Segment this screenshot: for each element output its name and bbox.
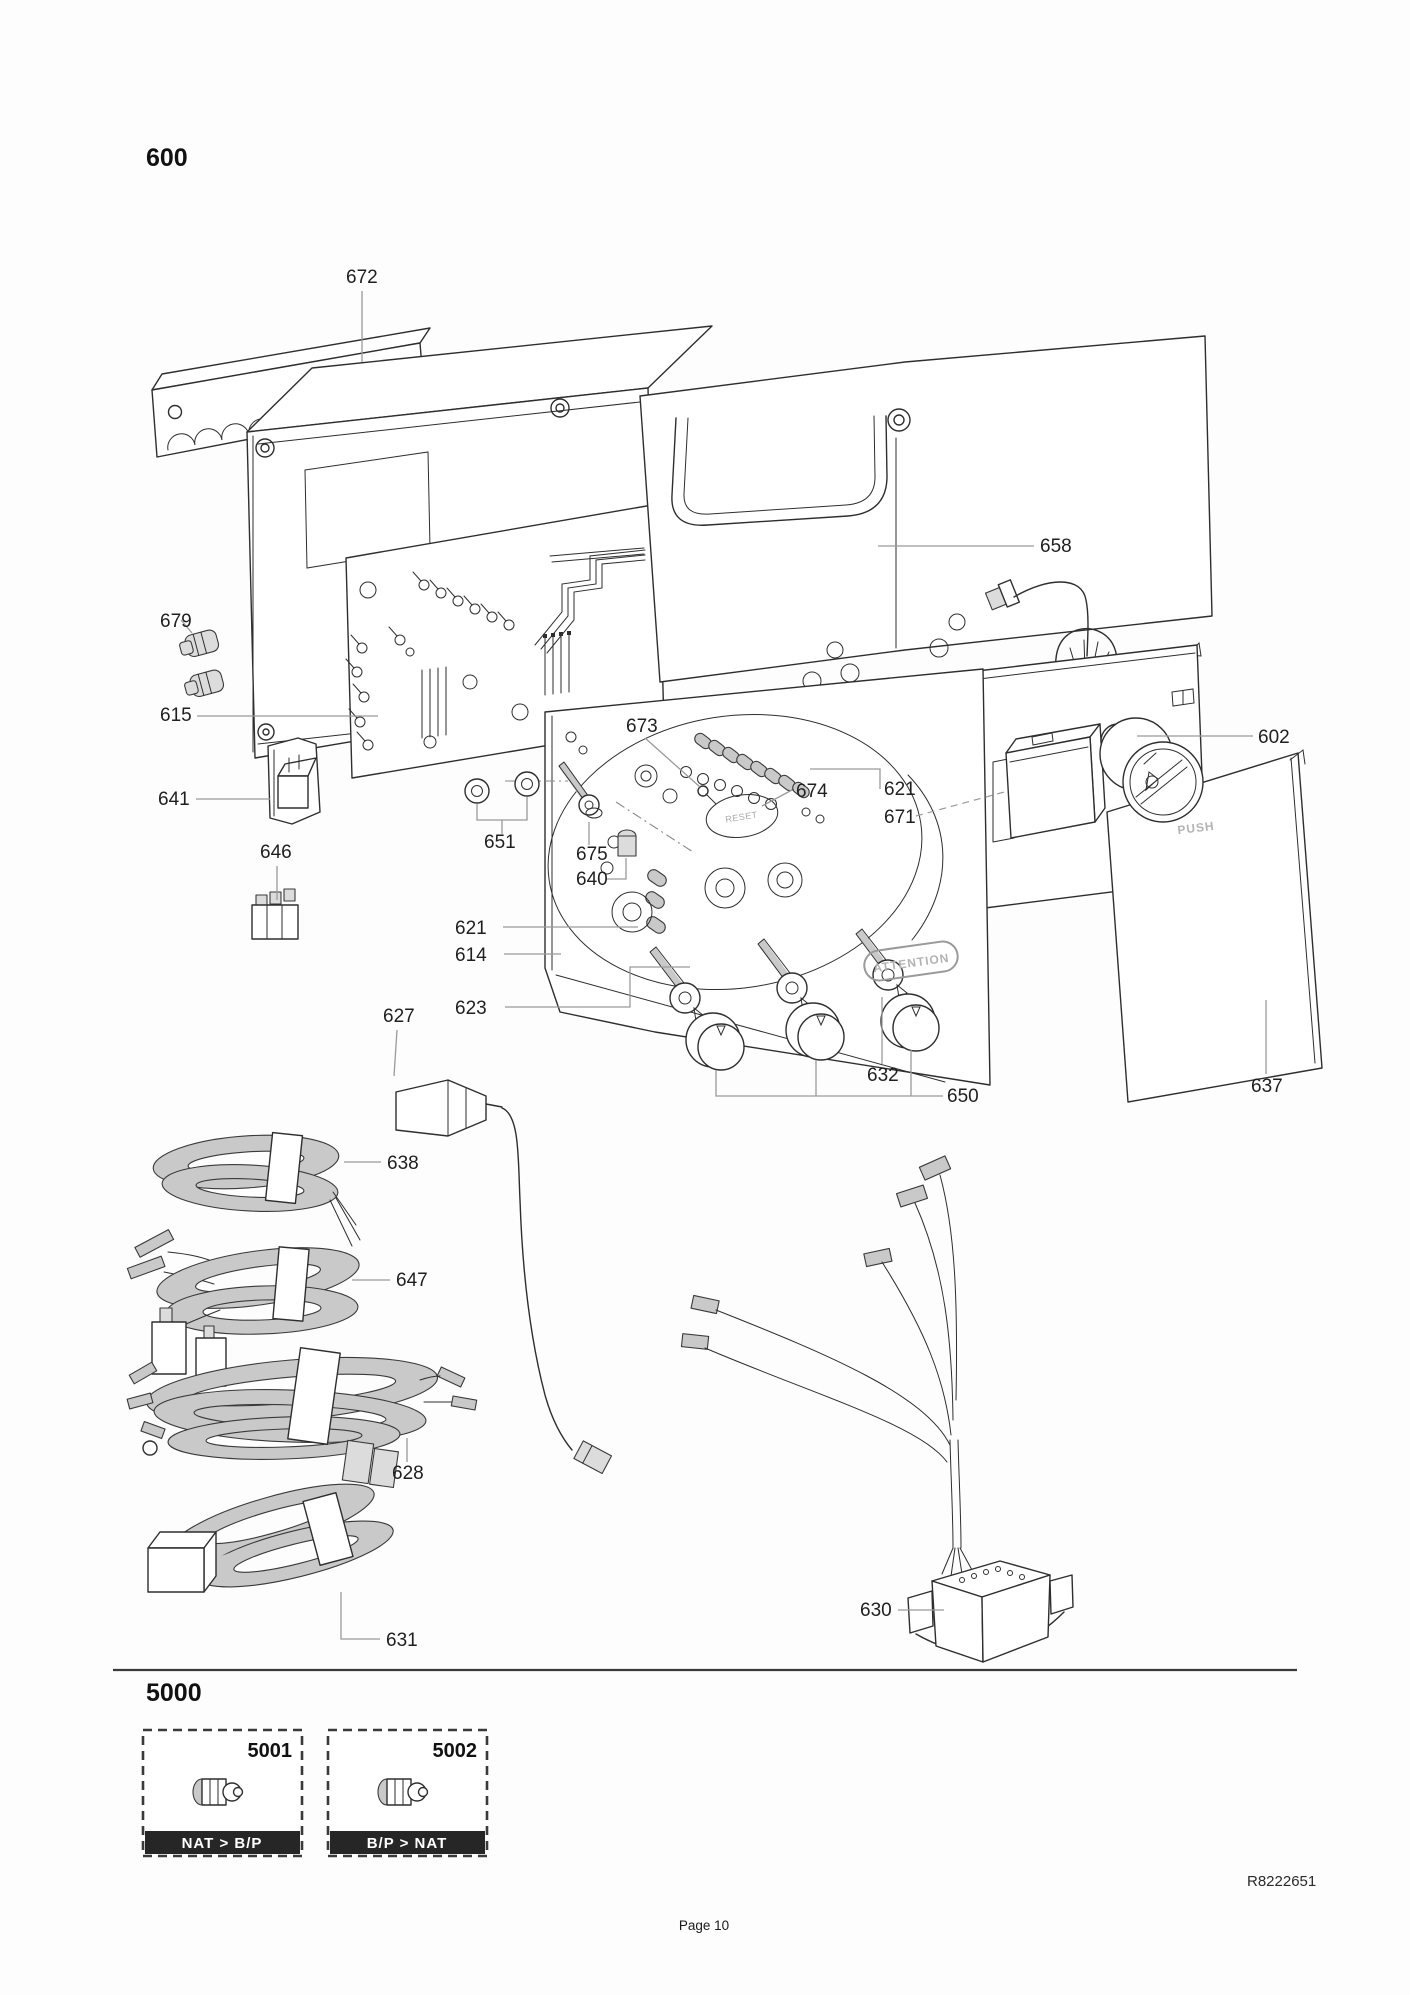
cable-627 bbox=[396, 1080, 612, 1474]
cover-panel-658 bbox=[640, 336, 1212, 690]
part-label-671: 671 bbox=[884, 807, 916, 828]
injector-icon bbox=[193, 1779, 243, 1805]
part-label-615: 615 bbox=[160, 705, 192, 726]
part-label-614: 614 bbox=[455, 945, 487, 966]
part-label-628: 628 bbox=[392, 1463, 424, 1484]
callout-651: 651 bbox=[477, 797, 527, 853]
washers-651 bbox=[465, 772, 539, 803]
part-label-623: 623 bbox=[455, 998, 487, 1019]
part-label-630: 630 bbox=[860, 1600, 892, 1621]
harness-wires bbox=[681, 1156, 972, 1576]
part-label-674: 674 bbox=[796, 781, 828, 802]
manual-page: 600 672 bbox=[0, 0, 1410, 1995]
callout-679: 679 bbox=[160, 611, 192, 633]
kit-5001: 5001 NAT > B/P bbox=[143, 1730, 302, 1856]
cable-638 bbox=[151, 1130, 360, 1246]
part-label-679: 679 bbox=[160, 611, 192, 632]
part-label-637: 637 bbox=[1251, 1076, 1283, 1097]
part-label-647: 647 bbox=[396, 1270, 428, 1291]
kit-5002: 5002 B/P > NAT bbox=[328, 1730, 487, 1856]
callout-647: 647 bbox=[352, 1270, 428, 1291]
part-label-675: 675 bbox=[576, 844, 608, 865]
section-5000-title: 5000 bbox=[146, 1679, 202, 1707]
part-label-651: 651 bbox=[484, 832, 516, 853]
part-label-640: 640 bbox=[576, 869, 608, 890]
part-label-627: 627 bbox=[383, 1006, 415, 1027]
callout-641: 641 bbox=[158, 789, 270, 810]
terminal-block-646 bbox=[252, 889, 298, 939]
kit-number-5002: 5002 bbox=[433, 1740, 478, 1762]
cable-631 bbox=[148, 1469, 399, 1601]
kit-number-5001: 5001 bbox=[248, 1740, 293, 1762]
part-label-621-left: 621 bbox=[455, 918, 487, 939]
callout-631: 631 bbox=[341, 1592, 418, 1651]
part-label-638: 638 bbox=[387, 1153, 419, 1174]
section-600-title: 600 bbox=[146, 144, 188, 172]
part-label-672: 672 bbox=[346, 267, 378, 288]
page-number: Page 10 bbox=[679, 1918, 729, 1933]
kit-caption-5002: B/P > NAT bbox=[367, 1835, 448, 1852]
grommets-679 bbox=[178, 629, 225, 700]
part-label-632: 632 bbox=[867, 1065, 899, 1086]
part-label-641: 641 bbox=[158, 789, 190, 810]
part-label-658: 658 bbox=[1040, 536, 1072, 557]
part-label-646: 646 bbox=[260, 842, 292, 863]
kit-caption-5001: NAT > B/P bbox=[182, 1835, 263, 1852]
part-label-650: 650 bbox=[947, 1086, 979, 1107]
part-label-673: 673 bbox=[626, 716, 658, 737]
part-label-631: 631 bbox=[386, 1630, 418, 1651]
injector-icon bbox=[378, 1779, 428, 1805]
callout-638: 638 bbox=[344, 1153, 419, 1174]
doc-code: R8222651 bbox=[1247, 1873, 1316, 1890]
exploded-diagram: 600 672 bbox=[0, 0, 1410, 1995]
relay-bracket-641 bbox=[268, 738, 320, 824]
callout-627: 627 bbox=[383, 1006, 415, 1076]
connector-630 bbox=[908, 1561, 1073, 1662]
part-label-621-right: 621 bbox=[884, 779, 916, 800]
part-label-602: 602 bbox=[1258, 727, 1290, 748]
